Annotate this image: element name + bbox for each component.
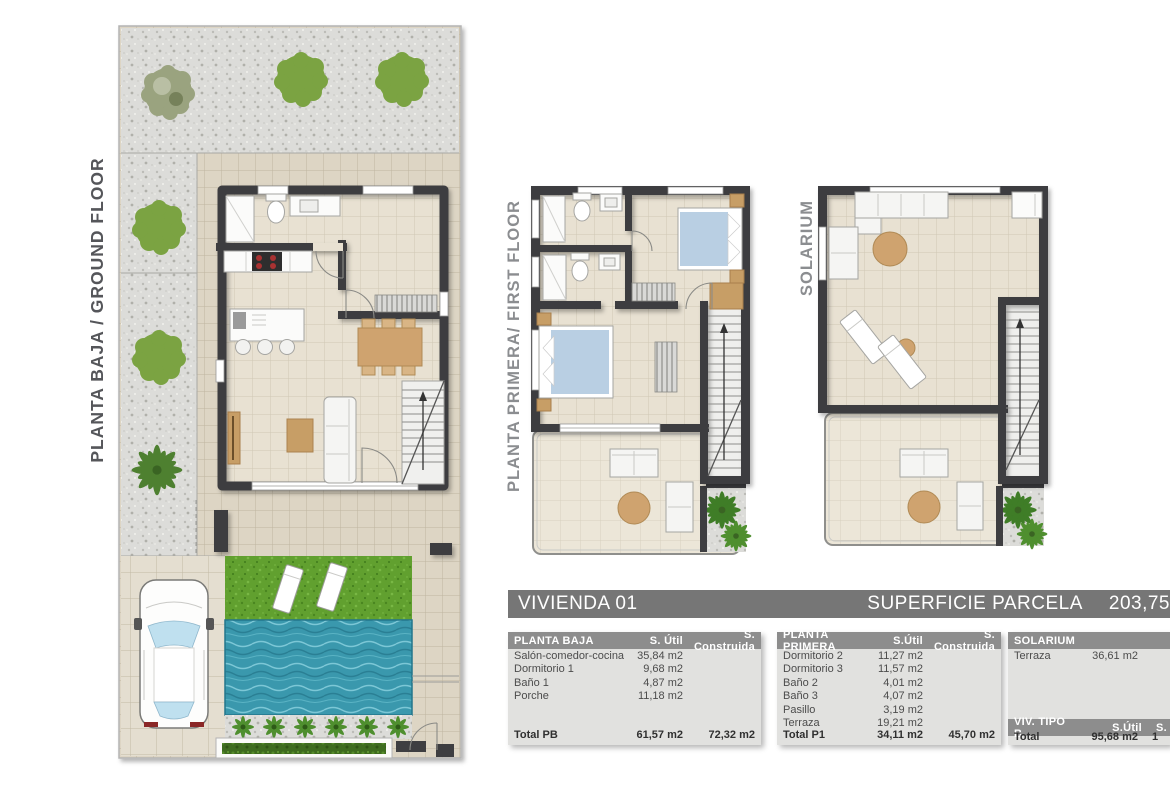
table-row: Porche11,18 m2 xyxy=(508,690,761,704)
vivienda-title: VIVIENDA 01 xyxy=(518,593,638,615)
table-total-row: Total95,68 m21 xyxy=(1008,731,1170,745)
hedge-planter xyxy=(216,738,392,758)
planting-bed xyxy=(225,715,412,739)
swimming-pool xyxy=(225,620,412,715)
table-row: Baño 14,87 m2 xyxy=(508,676,761,690)
ff-closet xyxy=(710,283,743,309)
table-header: SOLARIUM xyxy=(1008,632,1170,649)
coffee-table xyxy=(287,419,313,452)
first-floor-label: PLANTA PRIMERA/ FIRST FLOOR xyxy=(504,181,524,511)
table-header: PLANTA PRIMERA S.Útil S. Construida xyxy=(777,632,1001,649)
dining-table xyxy=(358,319,422,375)
table-row: Baño 24,01 m2 xyxy=(777,676,1001,690)
car-icon xyxy=(134,580,214,728)
palm-tree-icon xyxy=(132,445,183,496)
parcela-value: 203,75 xyxy=(1109,593,1170,615)
wardrobe xyxy=(375,295,437,312)
table-total-row: Total PB61,57 m272,32 m2 xyxy=(508,729,761,743)
sofa xyxy=(324,397,356,483)
table-solarium: SOLARIUM Terraza36,61 m2 VIV. TIPO B S.Ú… xyxy=(1008,632,1170,745)
ground-floor-plan xyxy=(119,26,461,758)
table-total-row: Total P134,11 m245,70 m2 xyxy=(777,729,1001,743)
ground-floor-label: PLANTA BAJA / GROUND FLOOR xyxy=(87,150,107,470)
parcela-label: SUPERFICIE PARCELA xyxy=(867,593,1083,615)
table-row: Pasillo3,19 m2 xyxy=(777,703,1001,717)
grass-lawn xyxy=(225,556,412,620)
solarium-label: SOLARIUM xyxy=(797,183,817,313)
wardrobe xyxy=(632,283,675,301)
table-planta-primera: PLANTA PRIMERA S.Útil S. Construida Dorm… xyxy=(777,632,1001,745)
first-floor-plan xyxy=(531,186,751,554)
table-header: PLANTA BAJA S. Útil S. Construida xyxy=(508,632,761,649)
table-row: Dormitorio 19,68 m2 xyxy=(508,663,761,677)
bed xyxy=(537,313,613,411)
table-row: Baño 34,07 m2 xyxy=(777,690,1001,704)
wardrobe xyxy=(655,342,677,392)
table-planta-baja: PLANTA BAJA S. Útil S. Construida Salón-… xyxy=(508,632,761,745)
stove-icon xyxy=(252,252,282,271)
table-row: Terraza36,61 m2 xyxy=(1008,649,1170,663)
stairs xyxy=(402,381,444,484)
ff-stairs xyxy=(708,316,741,476)
floorplan-sheet: PLANTA BAJA / GROUND FLOOR PLANTA PRIMER… xyxy=(0,0,1170,785)
solarium-plan xyxy=(818,186,1048,549)
table-row: Dormitorio 311,57 m2 xyxy=(777,663,1001,677)
title-bar: VIVIENDA 01 SUPERFICIE PARCELA 203,75 xyxy=(508,590,1170,618)
